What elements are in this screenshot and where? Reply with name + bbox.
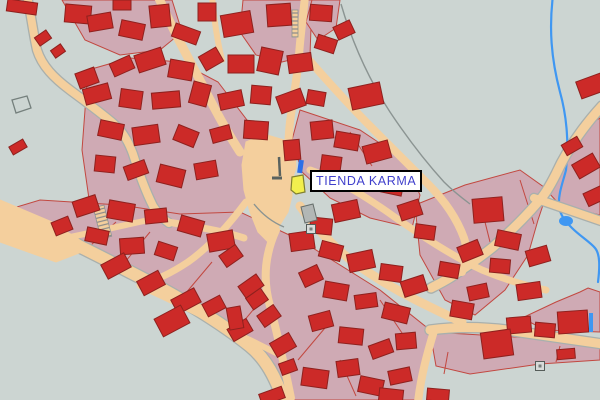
map-viewport[interactable]: TIENDA KARMA [0,0,600,400]
building [220,11,253,38]
building [107,200,136,222]
building [378,388,403,400]
building [257,47,284,75]
building [310,120,334,140]
map-label-tienda-karma: TIENDA KARMA [310,170,422,192]
map-canvas[interactable] [0,0,600,400]
selected-parcel[interactable] [291,175,305,194]
building [334,131,360,151]
building [151,91,180,109]
building [438,261,460,278]
building [414,224,436,241]
building [516,281,542,300]
building [557,310,588,334]
building [168,59,195,81]
building [395,332,416,350]
building [87,12,113,32]
building [480,329,513,359]
building [323,281,349,301]
building [149,4,171,28]
building [306,90,326,107]
wall-line [279,157,280,176]
building [489,258,510,274]
building [250,85,271,105]
building [119,237,144,255]
blue-strip [589,313,593,332]
building [472,197,504,224]
building [301,367,329,388]
building [534,322,555,338]
building [228,55,254,73]
building [283,139,301,160]
building [144,208,167,224]
map-label-text: TIENDA KARMA [316,174,416,188]
stairs-hatch [292,10,298,37]
selected-parcel-polygon [291,175,305,194]
building [94,155,116,173]
building [287,52,313,73]
building [119,89,143,110]
building [427,388,450,400]
building [450,300,474,320]
building [336,359,360,378]
pond [559,216,573,226]
building [266,3,291,27]
building [198,3,216,21]
building [309,4,332,21]
building [338,327,364,345]
building [557,348,576,360]
building [379,264,403,283]
building [354,293,378,310]
building [132,124,160,145]
building [113,0,131,10]
building [194,160,218,180]
building [243,120,268,140]
